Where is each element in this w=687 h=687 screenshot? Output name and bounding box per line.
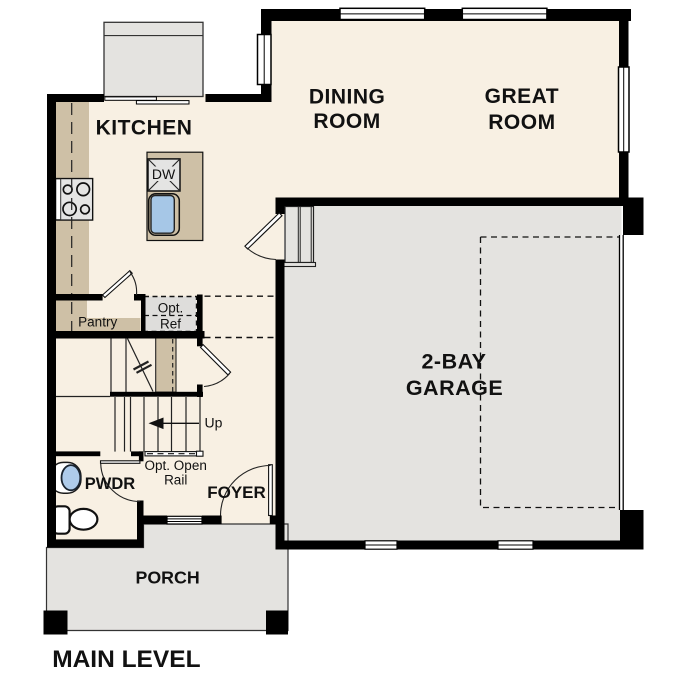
svg-text:GREAT: GREAT — [485, 85, 559, 108]
svg-text:Ref: Ref — [160, 317, 181, 332]
svg-text:Opt.: Opt. — [158, 301, 184, 316]
svg-text:MAIN LEVEL: MAIN LEVEL — [52, 646, 200, 673]
svg-text:Pantry: Pantry — [78, 315, 117, 330]
svg-text:ROOM: ROOM — [313, 110, 380, 133]
svg-text:Up: Up — [205, 415, 223, 431]
svg-text:PORCH: PORCH — [135, 568, 199, 588]
svg-text:DW: DW — [152, 166, 176, 182]
svg-text:FOYER: FOYER — [207, 483, 266, 502]
svg-text:DINING: DINING — [309, 86, 386, 109]
svg-text:GARAGE: GARAGE — [406, 376, 503, 400]
svg-text:ROOM: ROOM — [488, 111, 555, 134]
svg-text:2-BAY: 2-BAY — [421, 350, 486, 374]
svg-text:Rail: Rail — [164, 473, 187, 488]
svg-text:Opt. Open: Opt. Open — [145, 458, 207, 473]
svg-text:PWDR: PWDR — [85, 475, 135, 493]
svg-text:KITCHEN: KITCHEN — [96, 117, 193, 140]
